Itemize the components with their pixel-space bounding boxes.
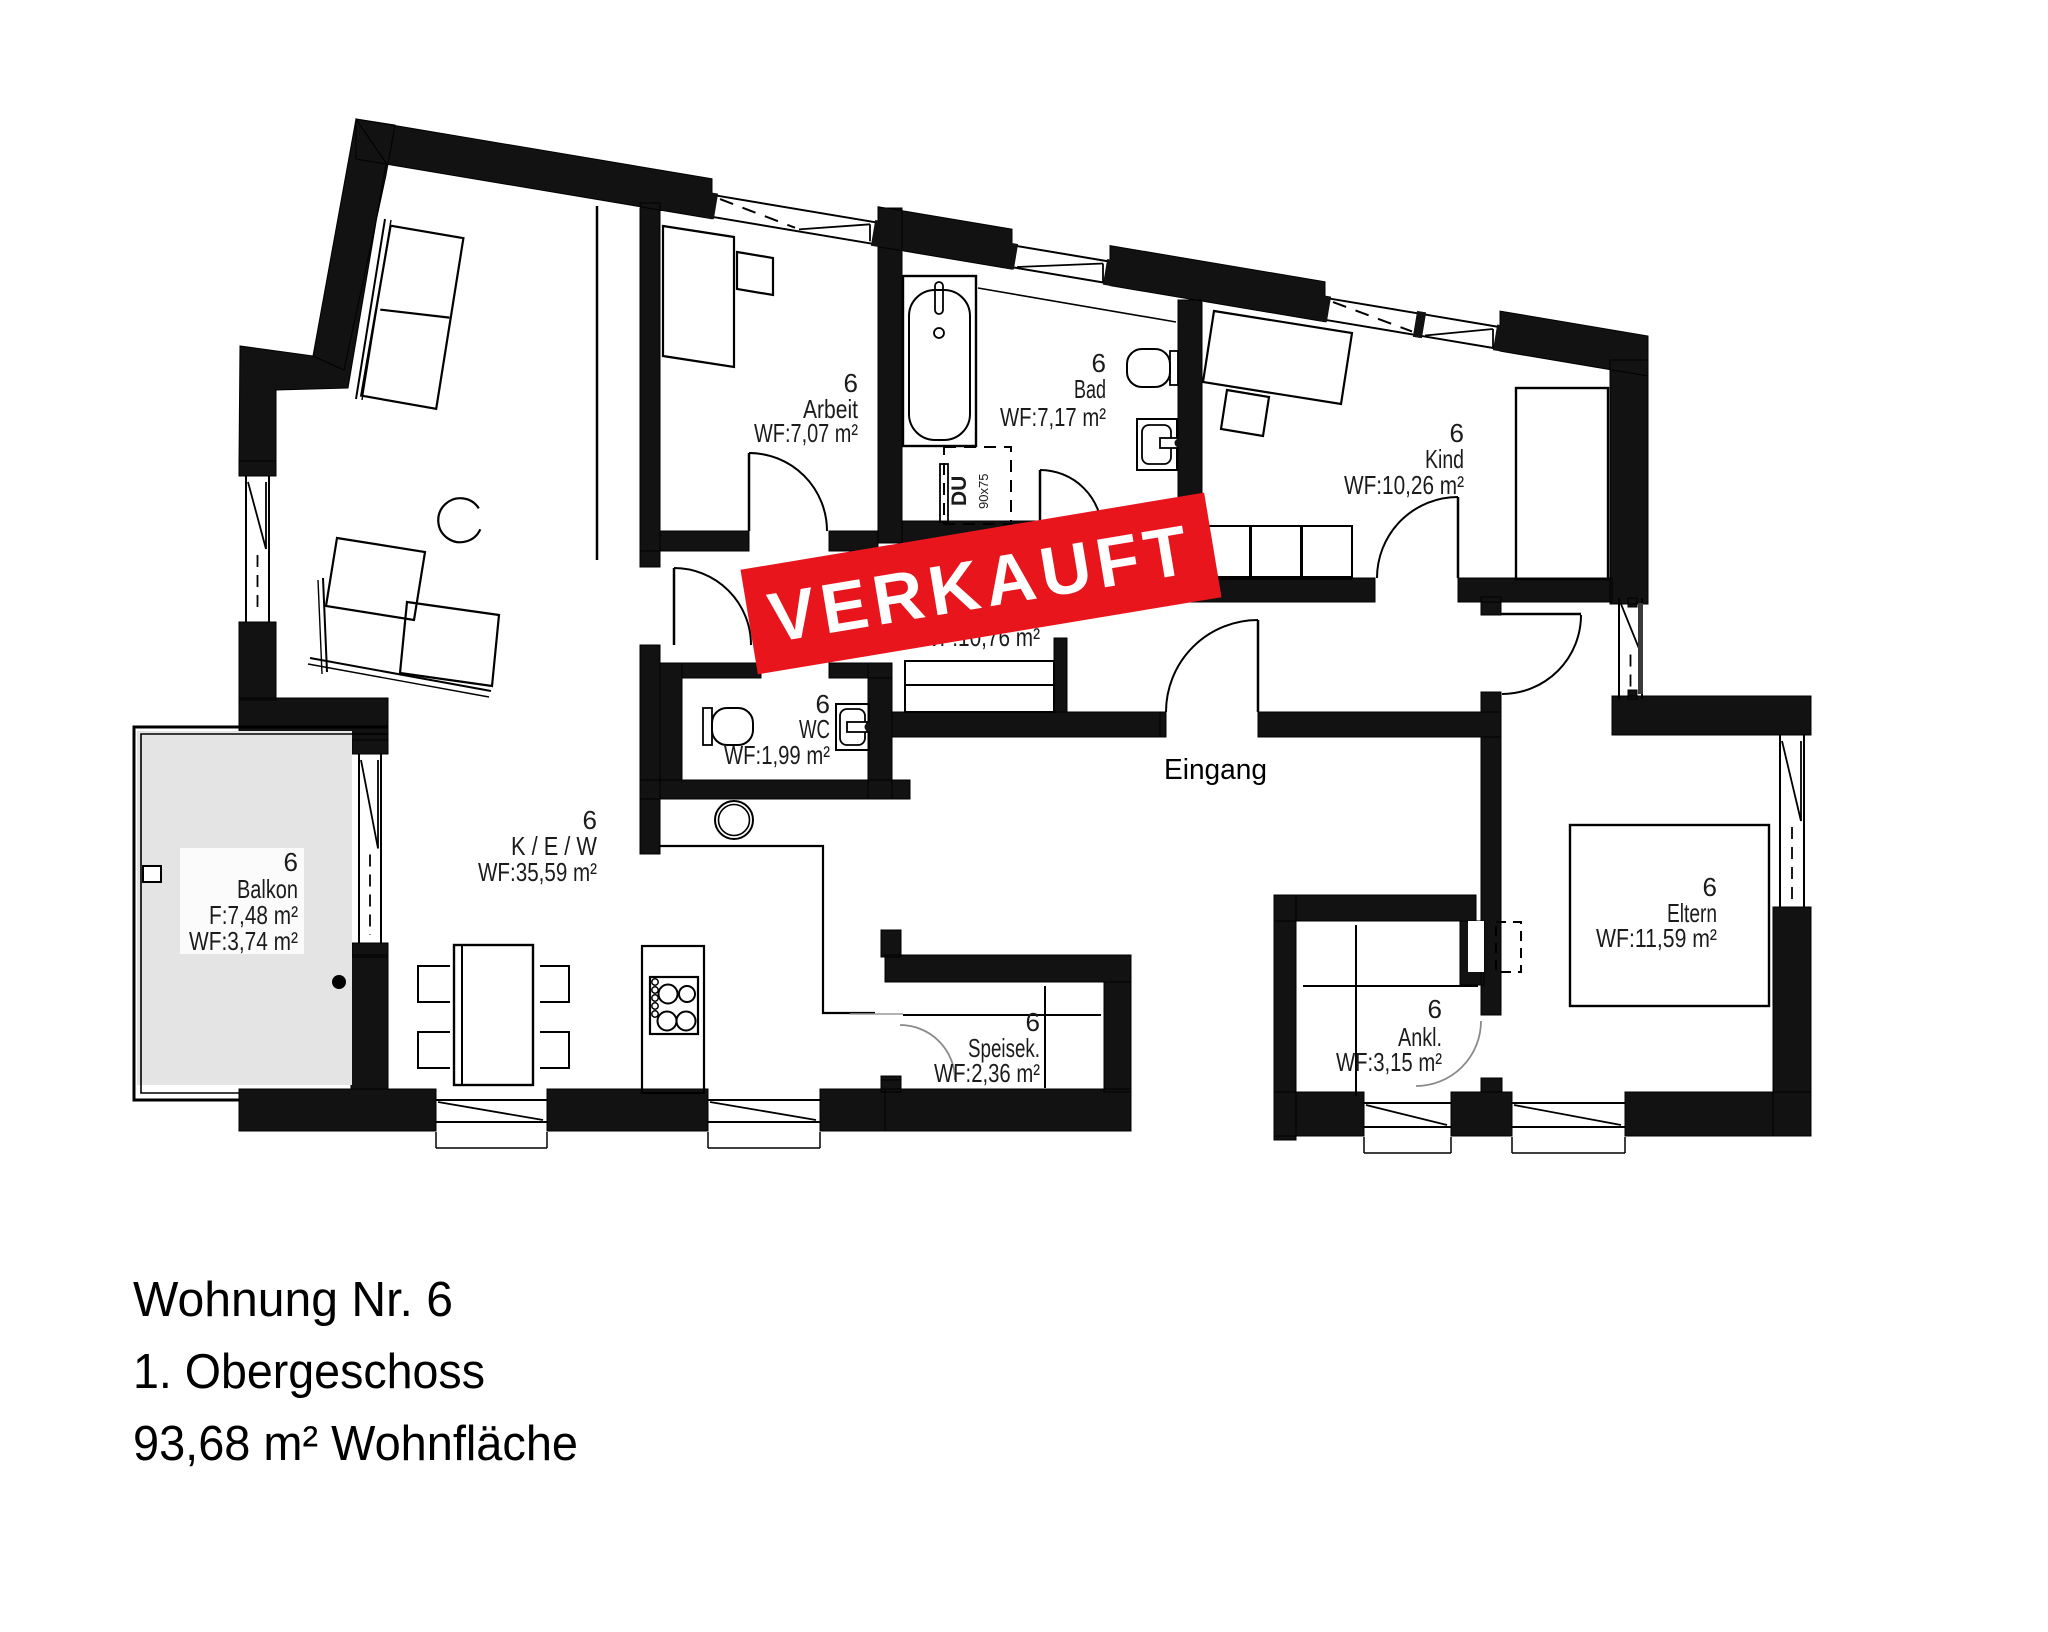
svg-text:WF:2,36 m²: WF:2,36 m² bbox=[934, 1058, 1040, 1088]
svg-text:WF:7,07 m²: WF:7,07 m² bbox=[754, 418, 858, 448]
svg-text:WF:35,59 m²: WF:35,59 m² bbox=[478, 857, 597, 887]
svg-text:WF:10,26 m²: WF:10,26 m² bbox=[1344, 470, 1464, 500]
svg-text:Bad: Bad bbox=[1074, 374, 1106, 404]
svg-text:6: 6 bbox=[284, 847, 298, 877]
svg-text:1. Obergeschoss: 1. Obergeschoss bbox=[133, 1345, 485, 1399]
svg-text:WF:1,99 m²: WF:1,99 m² bbox=[724, 740, 830, 770]
svg-text:93,68 m² Wohnfläche: 93,68 m² Wohnfläche bbox=[133, 1417, 578, 1471]
svg-text:Eingang: Eingang bbox=[1164, 754, 1267, 786]
svg-text:90x75: 90x75 bbox=[976, 474, 991, 509]
svg-text:6: 6 bbox=[1428, 994, 1442, 1024]
svg-text:DU: DU bbox=[948, 476, 971, 506]
svg-text:WF:11,59 m²: WF:11,59 m² bbox=[1596, 923, 1717, 953]
svg-text:WF:3,74 m²: WF:3,74 m² bbox=[189, 926, 298, 956]
svg-text:Wohnung Nr. 6: Wohnung Nr. 6 bbox=[133, 1273, 453, 1327]
svg-text:WF:3,15 m²: WF:3,15 m² bbox=[1336, 1047, 1442, 1077]
svg-text:WF:7,17 m²: WF:7,17 m² bbox=[1000, 402, 1106, 432]
